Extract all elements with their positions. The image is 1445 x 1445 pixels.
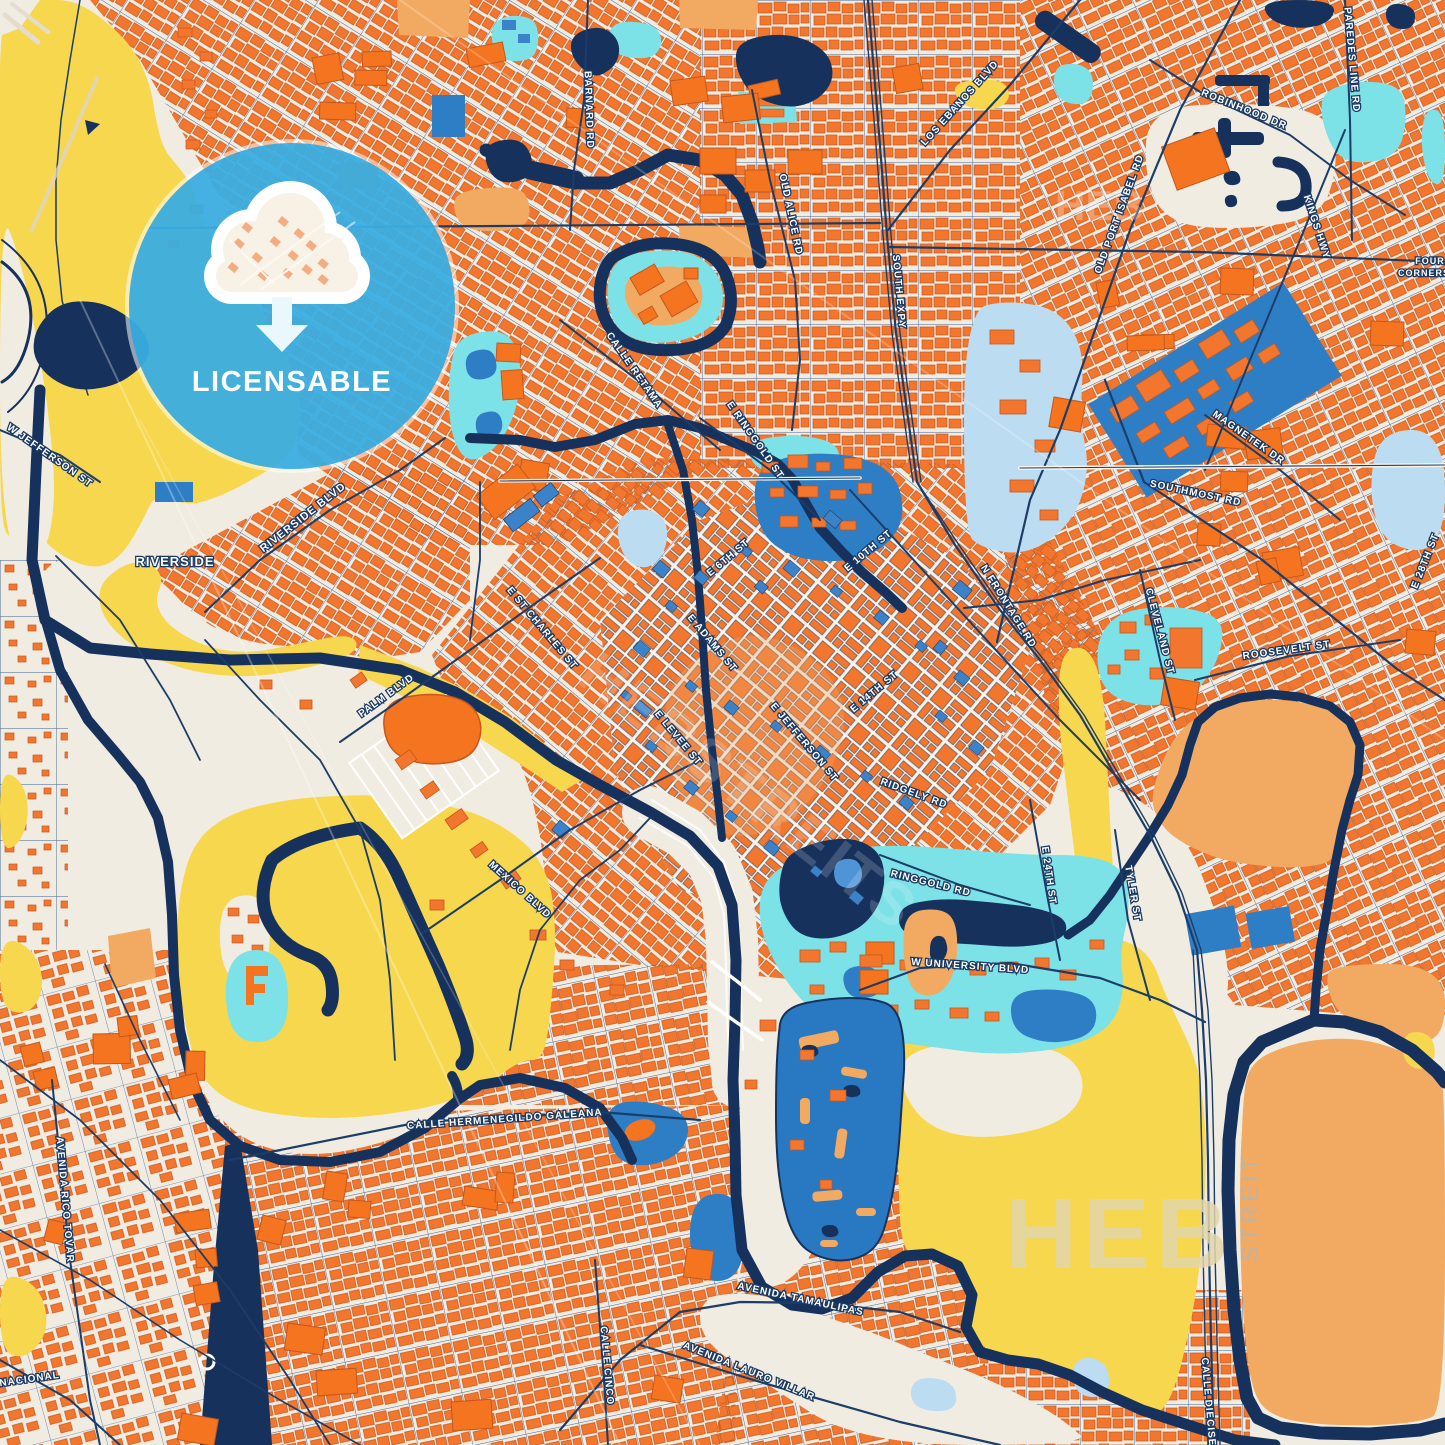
svg-text:CORNERS: CORNERS xyxy=(1398,268,1445,278)
svg-text:FOUR: FOUR xyxy=(1415,256,1445,266)
svg-text:RIVERSIDE: RIVERSIDE xyxy=(135,554,214,569)
svg-text:STREIT: STREIT xyxy=(1237,1153,1264,1262)
svg-text:HEB: HEB xyxy=(1005,1178,1234,1290)
svg-text:LICENSABLE: LICENSABLE xyxy=(192,366,392,398)
